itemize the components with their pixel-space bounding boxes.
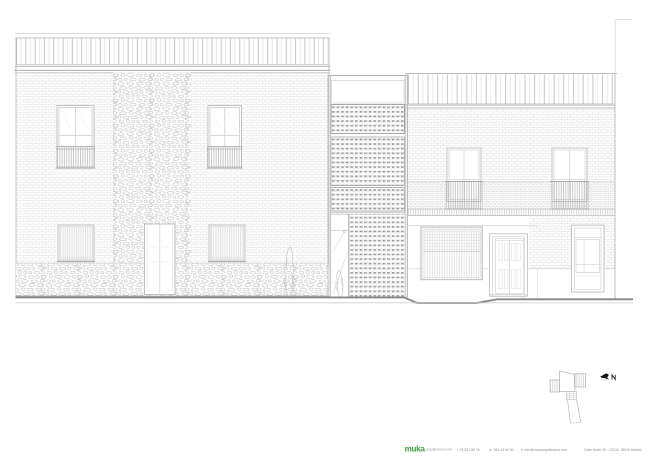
svg-text:arquitectura.com: arquitectura.com [426, 448, 452, 452]
svg-text:Calle Norte 26 - LOCAL 28015: Calle Norte 26 - LOCAL 28015 Madrid [584, 448, 641, 452]
svg-text:muka: muka [405, 444, 426, 453]
svg-text:t. 91 521 85 76: t. 91 521 85 76 [457, 448, 480, 452]
svg-text:m. 652 43 84 30: m. 652 43 84 30 [489, 448, 514, 452]
svg-text:e. info@mukaarquitectura.com: e. info@mukaarquitectura.com [521, 448, 567, 452]
